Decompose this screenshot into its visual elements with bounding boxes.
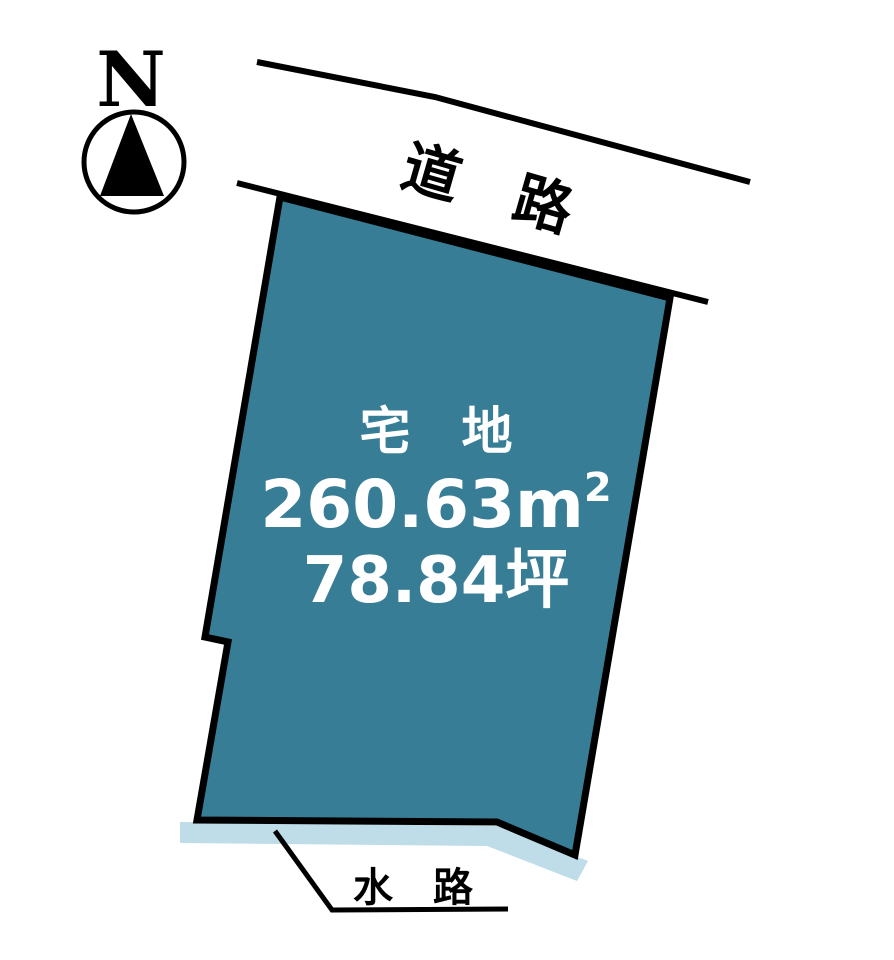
parcel-tsubo-unit: 坪 [505,544,569,618]
parcel-area-unit-superscript: 2 [584,465,612,511]
compass: N [84,35,184,212]
parcel-area-value: 260.63 [260,466,515,543]
parcel-type-label: 宅 地 [359,403,512,462]
parcel: 宅 地 260.63m2 78.84坪 [197,197,670,855]
parcel-area-label: 260.63m2 [260,465,611,543]
parcel-tsubo-value: 78.84 [303,544,505,618]
parcel-tsubo-label: 78.84坪 [303,544,569,618]
parcel-area-unit: m [515,466,584,543]
plot-drawing: N 道 路 水 路 宅 地 260.63m2 78.84坪 [0,0,894,960]
land-plot-diagram: N 道 路 水 路 宅 地 260.63m2 78.84坪 [0,0,894,960]
waterway-label: 水 路 [353,865,474,911]
